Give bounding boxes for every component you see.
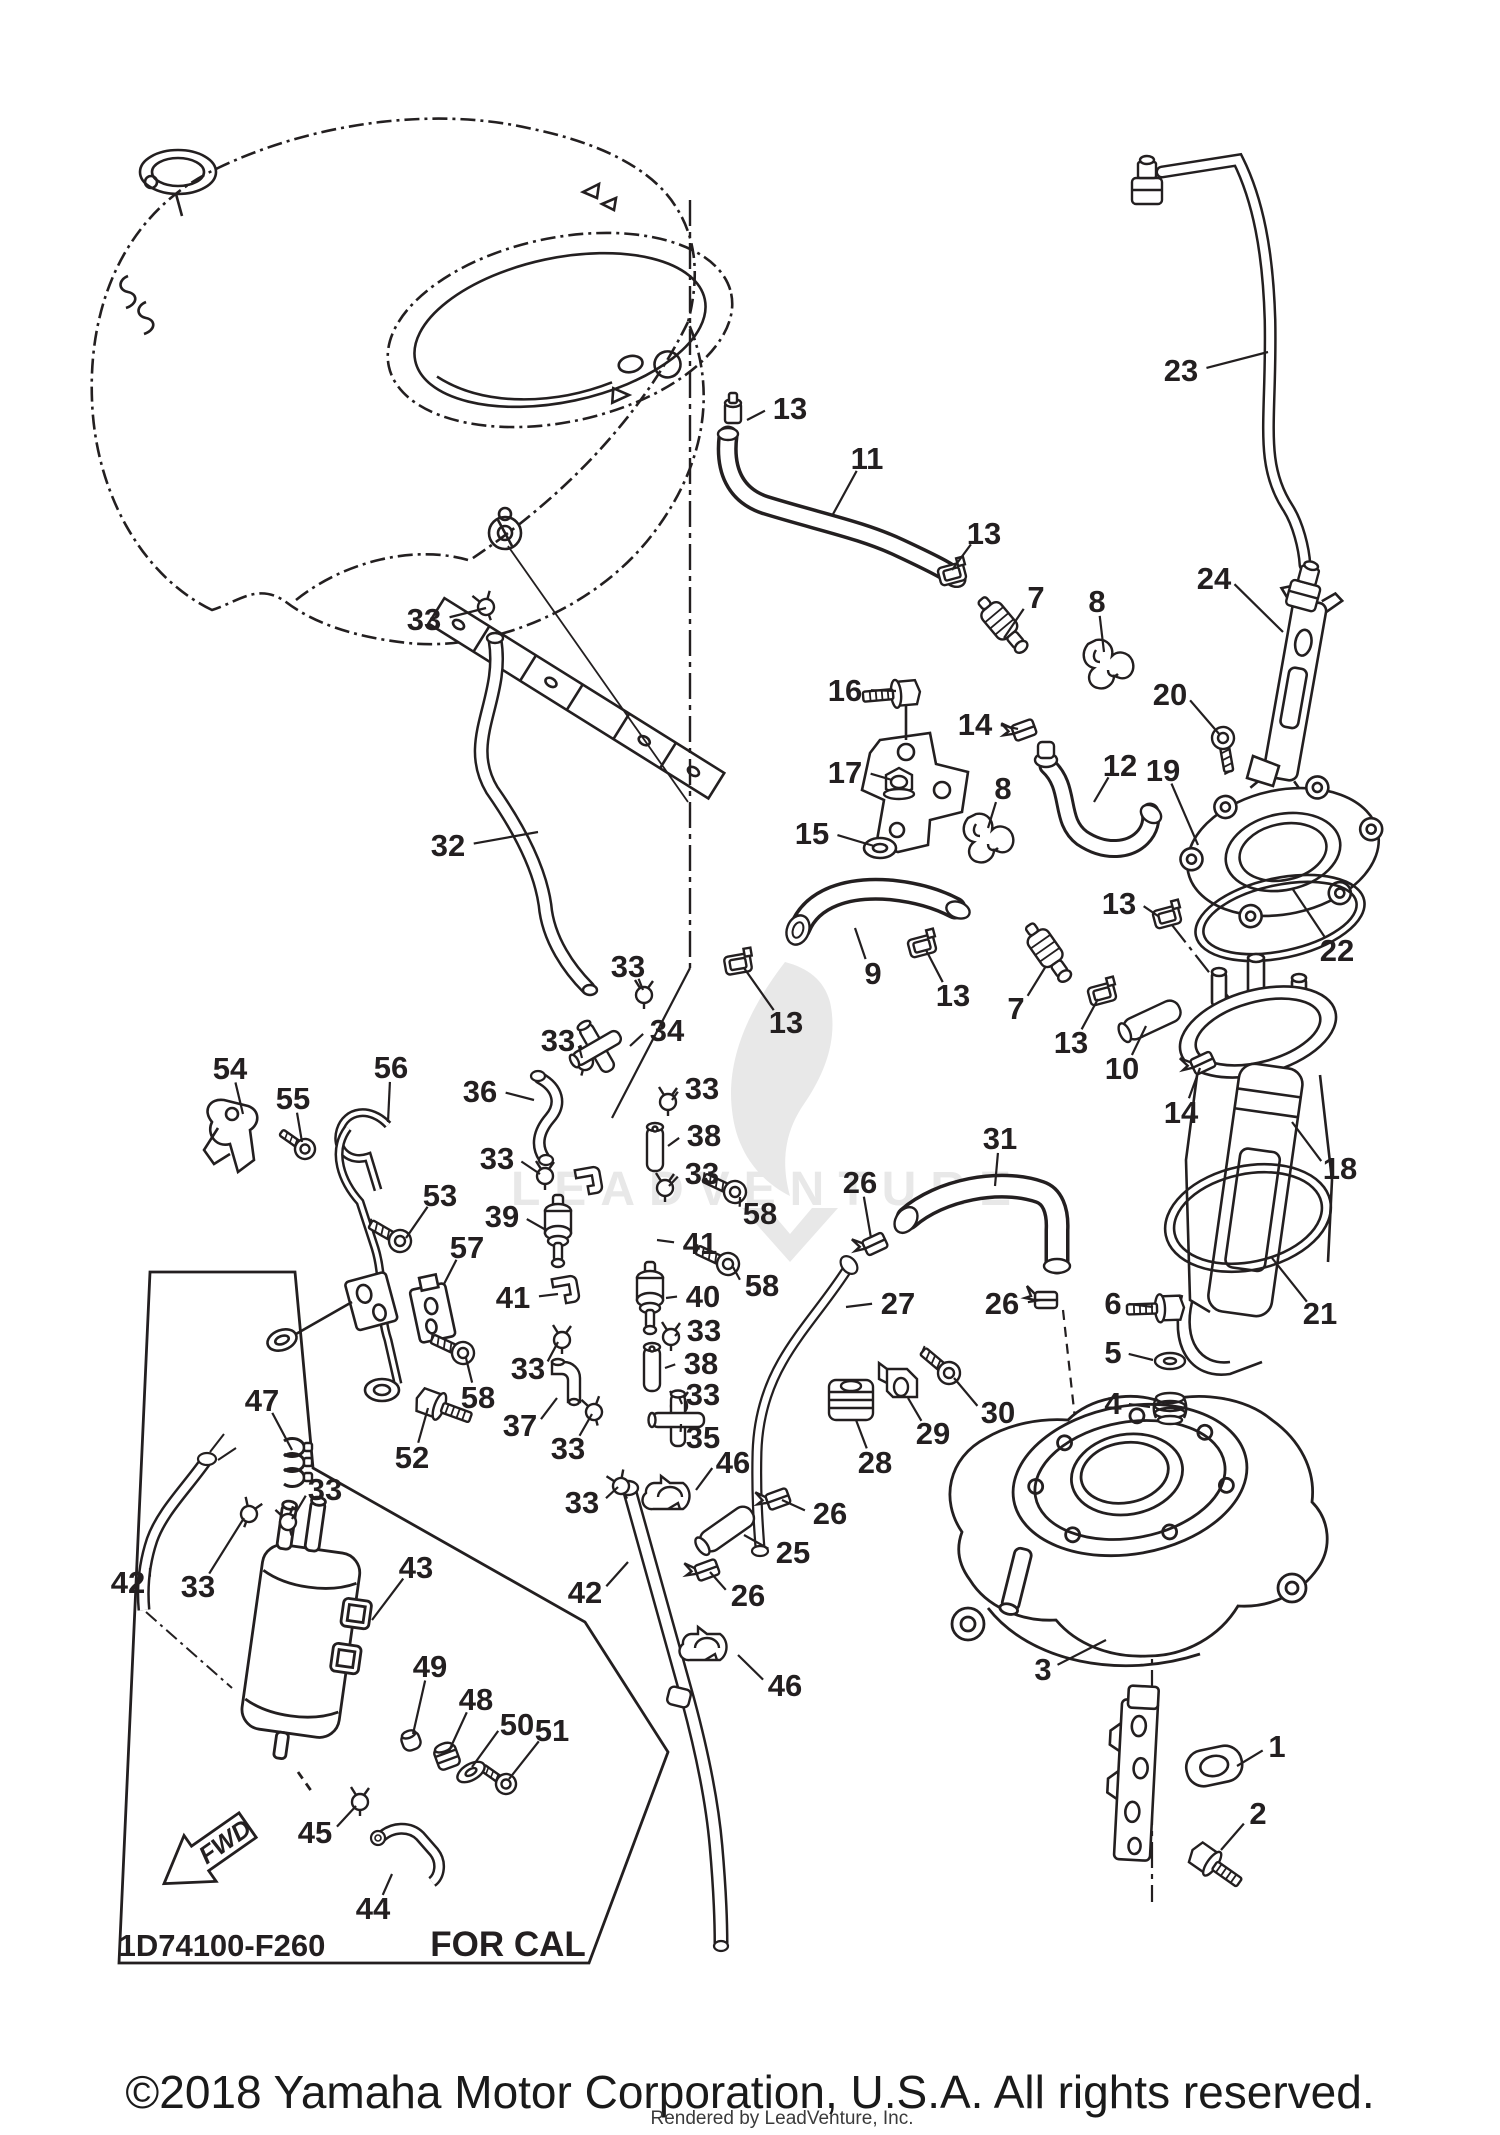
callout-38[interactable]: 38 — [665, 1346, 718, 1381]
part-number-label[interactable]: 7 — [1027, 580, 1044, 615]
leader-line — [954, 1378, 977, 1406]
part-holder46 — [679, 1627, 726, 1660]
callout-33[interactable]: 33 — [680, 1377, 721, 1412]
callout-36[interactable]: 36 — [463, 1074, 534, 1109]
part-number-label[interactable]: 58 — [461, 1380, 495, 1415]
callout-58[interactable]: 58 — [461, 1358, 495, 1415]
part-clamp — [659, 1087, 677, 1116]
leader-line — [832, 471, 857, 516]
part-screwS — [276, 1124, 319, 1163]
part-holder46 — [642, 1476, 689, 1509]
part-number-label[interactable]: 13 — [1102, 886, 1136, 921]
callout-44[interactable]: 44 — [356, 1874, 392, 1926]
part-number-label[interactable]: 33 — [686, 1377, 720, 1412]
callout-13[interactable]: 13 — [747, 391, 807, 426]
part-number-label[interactable]: 23 — [1164, 353, 1198, 388]
leader-line — [738, 1655, 763, 1680]
bracket-15 — [862, 706, 968, 858]
callout-21[interactable]: 21 — [1272, 1258, 1337, 1331]
for-cal-label: FOR CAL — [430, 1925, 586, 1964]
callout-24[interactable]: 24 — [1197, 561, 1283, 632]
part-number-label[interactable]: 45 — [298, 1815, 332, 1850]
leader-line — [539, 1294, 558, 1296]
callout-26[interactable]: 26 — [710, 1572, 765, 1613]
part-valve — [637, 1262, 663, 1334]
callout-5[interactable]: 5 — [1104, 1335, 1153, 1370]
part-number-label[interactable]: 56 — [374, 1050, 408, 1085]
leader-line — [449, 1712, 467, 1751]
leader-line — [846, 1304, 872, 1307]
callout-7[interactable]: 7 — [1004, 580, 1045, 638]
part-number-label[interactable]: 38 — [687, 1118, 721, 1153]
leader-line — [747, 411, 765, 420]
part-number-label[interactable]: 7 — [1007, 991, 1024, 1026]
leader-line — [527, 1219, 546, 1230]
part-bandclamp — [682, 1553, 720, 1585]
part-number-label[interactable]: 46 — [768, 1668, 802, 1703]
part-number-label[interactable]: 36 — [463, 1074, 497, 1109]
part-number-label[interactable]: 39 — [485, 1199, 519, 1234]
callout-15[interactable]: 15 — [795, 816, 874, 851]
part-seal — [432, 1740, 461, 1771]
part-number-label[interactable]: 27 — [881, 1286, 915, 1321]
part-clamp — [553, 1325, 571, 1354]
part-number-label[interactable]: 37 — [503, 1408, 537, 1443]
part-number-label[interactable]: 13 — [769, 1005, 803, 1040]
callout-1[interactable]: 1 — [1237, 1729, 1286, 1766]
part-number-label[interactable]: 13 — [967, 516, 1001, 551]
leader-line — [871, 690, 896, 691]
callout-29[interactable]: 29 — [908, 1398, 950, 1451]
leader-line — [1206, 352, 1268, 368]
tank-filler-cap — [140, 150, 216, 216]
part-number-label[interactable]: 33 — [611, 949, 645, 984]
part-injector — [1019, 918, 1077, 987]
part-number-label[interactable]: 33 — [541, 1023, 575, 1058]
part-number-label[interactable]: 8 — [994, 771, 1011, 806]
parts-diagram-canvas: LEADVENTURE — [0, 0, 1500, 2135]
hose-9 — [783, 889, 972, 948]
part-number-label[interactable]: 11 — [851, 441, 884, 476]
part-number-label[interactable]: 33 — [565, 1485, 599, 1520]
tank-emblem — [121, 276, 154, 334]
bracket-54 — [204, 1100, 257, 1172]
tank-opening — [370, 204, 751, 457]
part-number-label[interactable]: 33 — [511, 1351, 545, 1386]
part-number-label[interactable]: 21 — [1303, 1296, 1337, 1331]
part-number-label[interactable]: 33 — [480, 1141, 514, 1176]
part-number-label[interactable]: 48 — [459, 1682, 493, 1717]
callout-37[interactable]: 37 — [503, 1398, 557, 1443]
fuel-tank — [92, 119, 751, 799]
part-number-label[interactable]: 25 — [776, 1535, 810, 1570]
bracket-chain-56-57 — [264, 1113, 455, 1401]
part-number-label[interactable]: 31 — [983, 1121, 1017, 1156]
callout-35[interactable]: 35 — [681, 1420, 721, 1455]
leader-line — [630, 1034, 643, 1046]
part-bolt — [1127, 1294, 1185, 1324]
part-number-label[interactable]: 14 — [958, 707, 993, 742]
part-number-label[interactable]: 3 — [1034, 1652, 1051, 1687]
callout-58[interactable]: 58 — [733, 1267, 779, 1303]
part-bandclamp — [999, 713, 1037, 745]
callout-41[interactable]: 41 — [496, 1280, 558, 1315]
part-tube — [692, 1503, 758, 1558]
part-number-label[interactable]: 26 — [731, 1578, 765, 1613]
part-number-label[interactable]: 5 — [1104, 1335, 1121, 1370]
leader-line — [506, 1093, 534, 1100]
hose-31 — [890, 1186, 1070, 1273]
leader-line — [297, 1113, 302, 1142]
leader-line — [1171, 784, 1198, 845]
callout-8[interactable]: 8 — [988, 771, 1012, 828]
leader-line — [1292, 1122, 1321, 1161]
part-bracket29 — [879, 1363, 917, 1397]
part-number-label[interactable]: 18 — [1323, 1151, 1357, 1186]
callout-28[interactable]: 28 — [856, 1420, 892, 1480]
part-number-label[interactable]: 33 — [551, 1431, 585, 1466]
leader-line — [668, 1138, 679, 1146]
callout-13[interactable]: 13 — [1054, 999, 1098, 1060]
part-number-label[interactable]: 14 — [1164, 1095, 1199, 1130]
part-holder8 — [1084, 640, 1134, 689]
callout-11[interactable]: 11 — [832, 441, 883, 516]
callout-13[interactable]: 13 — [1102, 886, 1158, 921]
callout-18[interactable]: 18 — [1292, 1122, 1357, 1186]
callout-57[interactable]: 57 — [444, 1230, 484, 1284]
part-clip41 — [552, 1275, 580, 1305]
part-injector — [972, 592, 1033, 659]
part-number-label[interactable]: 49 — [413, 1649, 447, 1684]
bracket-1-2 — [1104, 1685, 1245, 1861]
part-number-label[interactable]: 42 — [568, 1575, 602, 1610]
part-screw — [1210, 725, 1240, 775]
part-hoseclamp — [1086, 977, 1119, 1006]
leader-line — [1028, 966, 1046, 996]
callout-48[interactable]: 48 — [449, 1682, 493, 1751]
part-number-label[interactable]: 15 — [795, 816, 829, 851]
part-number-label[interactable]: 33 — [685, 1156, 719, 1191]
callout-33[interactable]: 33 — [672, 1071, 719, 1106]
part-number-label[interactable]: 34 — [650, 1013, 685, 1048]
leader-line — [413, 1681, 425, 1734]
leader-line — [472, 1731, 498, 1767]
leader-line — [388, 1082, 390, 1122]
callout-46[interactable]: 46 — [738, 1655, 802, 1703]
part-number-label[interactable]: 40 — [686, 1279, 720, 1314]
part-number-label[interactable]: 33 — [308, 1472, 342, 1507]
part-number-label[interactable]: 1 — [1268, 1729, 1285, 1764]
part-bolt — [1185, 1839, 1248, 1895]
part-nut — [884, 768, 914, 799]
callout-45[interactable]: 45 — [298, 1806, 356, 1850]
plate-22 — [1169, 765, 1396, 975]
part-number-label[interactable]: 20 — [1153, 677, 1187, 712]
callout-2[interactable]: 2 — [1221, 1796, 1267, 1850]
part-number-label[interactable]: 53 — [423, 1178, 457, 1213]
part-number-label[interactable]: 9 — [864, 956, 881, 991]
part-number-label[interactable]: 41 — [496, 1280, 530, 1315]
callout-34[interactable]: 34 — [630, 1013, 685, 1048]
part-damper — [829, 1380, 873, 1420]
callout-43[interactable]: 43 — [372, 1550, 433, 1620]
callout-49[interactable]: 49 — [413, 1649, 447, 1734]
part-bolt — [862, 678, 921, 711]
part-number-label[interactable]: 54 — [213, 1051, 248, 1086]
part-number-label[interactable]: 17 — [828, 755, 862, 790]
callout-52[interactable]: 52 — [395, 1408, 429, 1475]
part-valve — [545, 1195, 571, 1267]
leader-line — [666, 1297, 677, 1298]
part-clamp — [635, 980, 653, 1009]
part-number-label[interactable]: 6 — [1104, 1286, 1121, 1321]
hose-36 — [531, 1071, 557, 1165]
part-number-label[interactable]: 47 — [245, 1383, 279, 1418]
leader-line — [1221, 1824, 1244, 1850]
callout-9[interactable]: 9 — [855, 928, 882, 991]
part-number-label[interactable]: 41 — [683, 1226, 717, 1261]
hose-11 — [718, 428, 969, 591]
callout-27[interactable]: 27 — [846, 1286, 915, 1321]
part-number-label[interactable]: 24 — [1197, 561, 1232, 596]
hose-44 — [371, 1829, 439, 1882]
callout-33[interactable]: 33 — [611, 949, 645, 990]
part-number-label[interactable]: 43 — [399, 1550, 433, 1585]
callout-33[interactable]: 33 — [551, 1414, 592, 1466]
leader-line — [1129, 1354, 1153, 1360]
part-number-label[interactable]: 44 — [356, 1891, 391, 1926]
callout-53[interactable]: 53 — [406, 1178, 457, 1238]
part-number-label[interactable]: 19 — [1146, 753, 1180, 788]
part-smalltube — [647, 1123, 663, 1171]
callout-42[interactable]: 42 — [111, 1565, 150, 1600]
leader-line — [696, 1468, 712, 1490]
rendered-by-text: Rendered by LeadVenture, Inc. — [650, 2108, 913, 2129]
leader-line — [541, 1398, 557, 1419]
callout-33[interactable]: 33 — [565, 1485, 618, 1520]
part-number-label[interactable]: 13 — [936, 978, 970, 1013]
callout-33[interactable]: 33 — [181, 1518, 244, 1604]
part-number-label[interactable]: 26 — [843, 1165, 877, 1200]
leader-line — [337, 1806, 356, 1827]
callout-16[interactable]: 16 — [828, 673, 896, 708]
part-number-label[interactable]: 33 — [687, 1313, 721, 1348]
leader-line — [1234, 584, 1283, 632]
leader-line — [1190, 700, 1220, 735]
part-number-label[interactable]: 12 — [1103, 748, 1137, 783]
part-bushing — [399, 1728, 423, 1752]
part-number-label[interactable]: 33 — [181, 1569, 215, 1604]
callout-58[interactable]: 58 — [740, 1196, 778, 1231]
part-number-label[interactable]: 32 — [431, 828, 465, 863]
callout-7[interactable]: 7 — [1007, 966, 1046, 1026]
part-grommet — [1154, 1393, 1187, 1424]
part-smalltube — [644, 1343, 660, 1391]
part-number-label[interactable]: 42 — [111, 1565, 145, 1600]
part-clamp — [581, 1395, 606, 1428]
callout-30[interactable]: 30 — [954, 1378, 1015, 1430]
callout-38[interactable]: 38 — [668, 1118, 721, 1153]
part-number-label[interactable]: 52 — [395, 1440, 429, 1475]
part-number-label[interactable]: 13 — [1054, 1025, 1088, 1060]
part-number-label[interactable]: 57 — [450, 1230, 484, 1265]
tank-vent-fitting — [489, 508, 521, 549]
leader-line — [855, 928, 866, 959]
part-hoseclamp — [906, 929, 939, 958]
callout-41[interactable]: 41 — [657, 1226, 717, 1261]
callout-13[interactable]: 13 — [926, 950, 970, 1013]
part-number-label[interactable]: 33 — [407, 602, 441, 637]
part-number-label[interactable]: 4 — [1104, 1386, 1122, 1421]
part-holder8 — [964, 814, 1014, 863]
diagram-page: LEADVENTURE — [0, 0, 1500, 2135]
part-number-label[interactable]: 38 — [684, 1346, 718, 1381]
part-number-label[interactable]: 51 — [535, 1713, 569, 1748]
leader-line — [665, 1364, 675, 1368]
fwd-arrow: FWD — [148, 1802, 264, 1907]
part-number-label[interactable]: 2 — [1249, 1796, 1266, 1831]
part-bandclamp — [1025, 1286, 1057, 1308]
leader-line — [209, 1518, 244, 1574]
box-code-label: 1D74100-F260 — [119, 1928, 326, 1963]
part-washer — [1155, 1353, 1185, 1369]
part-conn — [1132, 156, 1162, 204]
callout-26[interactable]: 26 — [782, 1496, 847, 1531]
leader-line — [1272, 1258, 1307, 1302]
part-number-label[interactable]: 22 — [1320, 933, 1354, 968]
leader-line — [272, 1413, 292, 1450]
part-number-label[interactable]: 33 — [685, 1071, 719, 1106]
callout-56[interactable]: 56 — [374, 1050, 408, 1122]
part-number-label[interactable]: 35 — [686, 1420, 720, 1455]
callout-12[interactable]: 12 — [1094, 748, 1137, 802]
bracket-24 — [1246, 584, 1343, 798]
part-number-label[interactable]: 16 — [828, 673, 862, 708]
callout-14[interactable]: 14 — [958, 707, 1018, 742]
part-number-label[interactable]: 55 — [276, 1081, 310, 1116]
part-number-label[interactable]: 28 — [858, 1445, 892, 1480]
canister-43 — [236, 1491, 386, 1792]
callout-42[interactable]: 42 — [568, 1562, 628, 1610]
leader-line — [606, 1562, 628, 1586]
watermark-flame-icon — [731, 962, 832, 1196]
part-number-label[interactable]: 30 — [981, 1395, 1015, 1430]
part-number-label[interactable]: 26 — [813, 1496, 847, 1531]
hose-42-canister — [143, 1434, 236, 1688]
leader-line — [657, 1240, 674, 1242]
part-hoseclamp — [723, 948, 755, 976]
part-number-label[interactable]: 26 — [985, 1286, 1019, 1321]
part-capnipple — [725, 393, 741, 423]
footer: ©2018 Yamaha Motor Corporation, U.S.A. A… — [125, 2066, 1374, 2129]
part-number-label[interactable]: 58 — [743, 1196, 777, 1231]
part-number-label[interactable]: 46 — [716, 1445, 750, 1480]
part-number-label[interactable]: 50 — [500, 1707, 534, 1742]
part-number-label[interactable]: 29 — [916, 1416, 950, 1451]
part-number-label[interactable]: 8 — [1088, 584, 1105, 619]
callout-23[interactable]: 23 — [1164, 352, 1268, 388]
part-number-label[interactable]: 58 — [745, 1268, 779, 1303]
part-clamp — [351, 1787, 369, 1816]
part-number-label[interactable]: 10 — [1105, 1051, 1139, 1086]
part-tube — [1116, 997, 1184, 1044]
callout-14[interactable]: 14 — [1164, 1068, 1200, 1130]
callout-40[interactable]: 40 — [666, 1279, 720, 1314]
callout-20[interactable]: 20 — [1153, 677, 1220, 735]
part-number-label[interactable]: 13 — [773, 391, 807, 426]
callout-33[interactable]: 33 — [675, 1313, 721, 1348]
tank-mount-strap — [429, 598, 725, 798]
part-clamp — [662, 1322, 680, 1351]
